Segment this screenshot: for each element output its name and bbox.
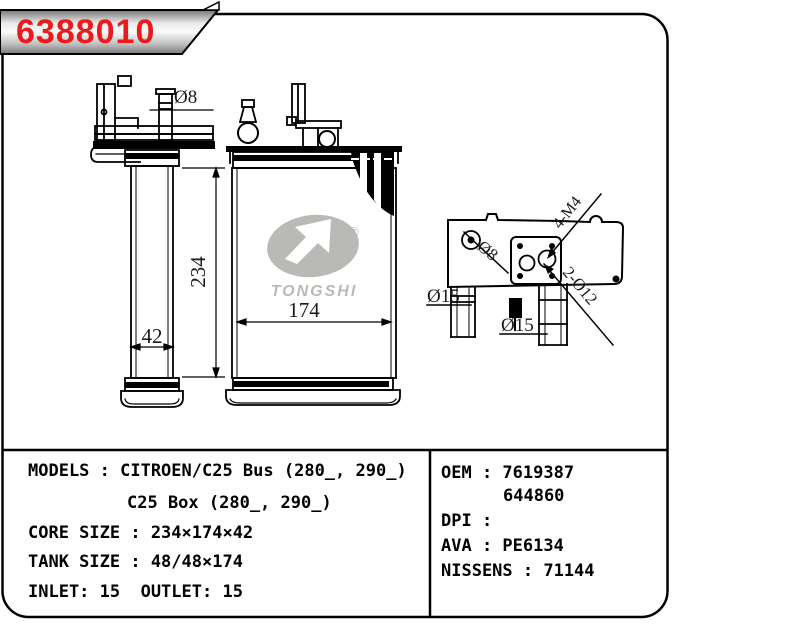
dim-side-width: 42 — [131, 324, 173, 349]
spec-nissens: NISSENS : 71144 — [441, 561, 595, 581]
watermark-registered-mark: ® — [349, 224, 359, 239]
detail-left-pipe-dia: Ø15 — [427, 286, 460, 308]
dim-side-height: 234 — [186, 242, 208, 302]
spec-models: MODELS : CITROEN/C25 Bus (280_, 290_) — [28, 461, 407, 481]
spec-oem: OEM : 7619387 — [441, 463, 574, 483]
dim-top-pipe-dia: Ø8 — [174, 87, 197, 109]
dim-front-width: 174 — [264, 298, 344, 323]
spec-core-size: CORE SIZE : 234×174×42 — [28, 523, 253, 543]
spec-models-cont: C25 Box (280_, 290_) — [127, 493, 332, 513]
spec-oem2: 644860 — [503, 486, 564, 506]
datasheet-page: 6388010 Ø8 234 42 174 Ø8 4-M4 2-Ø12 Ø15 … — [0, 0, 811, 632]
watermark-logo — [264, 210, 362, 281]
spec-ava: AVA : PE6134 — [441, 536, 564, 556]
spec-tank-size: TANK SIZE : 48/48×174 — [28, 552, 243, 572]
spec-dpi: DPI : — [441, 511, 492, 531]
spec-inlet-outlet: INLET: 15 OUTLET: 15 — [28, 582, 243, 602]
part-number: 6388010 — [16, 13, 155, 52]
detail-bottom-pipe-dia: Ø15 — [501, 315, 534, 337]
watermark-brand: TONGSHI — [256, 283, 372, 301]
